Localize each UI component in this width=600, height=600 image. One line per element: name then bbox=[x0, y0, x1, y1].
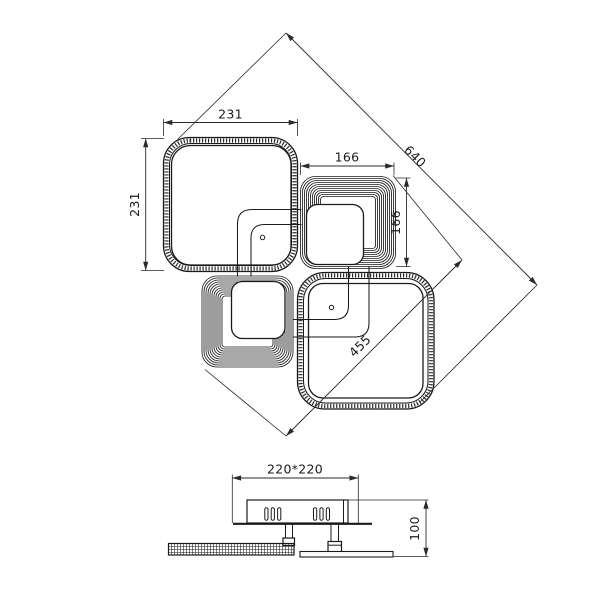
dim-label-height-100: 100 bbox=[407, 516, 422, 541]
dimension-width-166: 166 bbox=[301, 150, 395, 176]
panel-tl-diffuser-edge bbox=[172, 146, 292, 266]
dim-label-width-231: 231 bbox=[218, 107, 243, 122]
panel-rings-bottom-left bbox=[202, 276, 293, 367]
dim-label-height-231: 231 bbox=[127, 192, 142, 217]
dim-label-height-166: 166 bbox=[388, 210, 403, 235]
canopy-body bbox=[247, 500, 348, 523]
dim-label-canopy-220: 220*220 bbox=[267, 462, 323, 477]
dimension-height-231: 231 bbox=[127, 139, 164, 271]
panel-rings-top-right bbox=[301, 177, 396, 269]
ceiling-lamp-dimension-drawing: 231 231 166 166 640 bbox=[0, 0, 600, 600]
beaded-panel-side-profile bbox=[169, 544, 295, 556]
dimension-height-100: 100 bbox=[348, 500, 429, 557]
panel-br-screw-hole bbox=[329, 305, 333, 309]
dim-label-diagonal-640: 640 bbox=[401, 142, 429, 170]
panel-large-top-left bbox=[164, 138, 302, 277]
dimension-width-231: 231 bbox=[164, 107, 298, 137]
panel-bl-inner-diffuser bbox=[232, 282, 286, 339]
panel-tl-outer-edge bbox=[164, 138, 298, 272]
panel-tl-screw-hole bbox=[260, 235, 264, 239]
canopy-box bbox=[247, 500, 348, 523]
side-view: 220*220 100 bbox=[169, 462, 429, 558]
dim-label-width-166: 166 bbox=[335, 150, 360, 165]
stem-left bbox=[283, 524, 295, 546]
panel-tl-beaded-band bbox=[167, 141, 295, 269]
panel-tl-band-inner-edge bbox=[170, 144, 292, 266]
technical-drawing-page: 231 231 166 166 640 bbox=[0, 0, 600, 600]
flat-panel-side-profile bbox=[300, 552, 393, 558]
top-view: 231 231 166 166 640 bbox=[127, 33, 537, 436]
dim-label-diagonal-455: 455 bbox=[346, 332, 374, 360]
panel-tr-inner-diffuser bbox=[307, 205, 364, 265]
stem-right-collar bbox=[328, 542, 342, 553]
